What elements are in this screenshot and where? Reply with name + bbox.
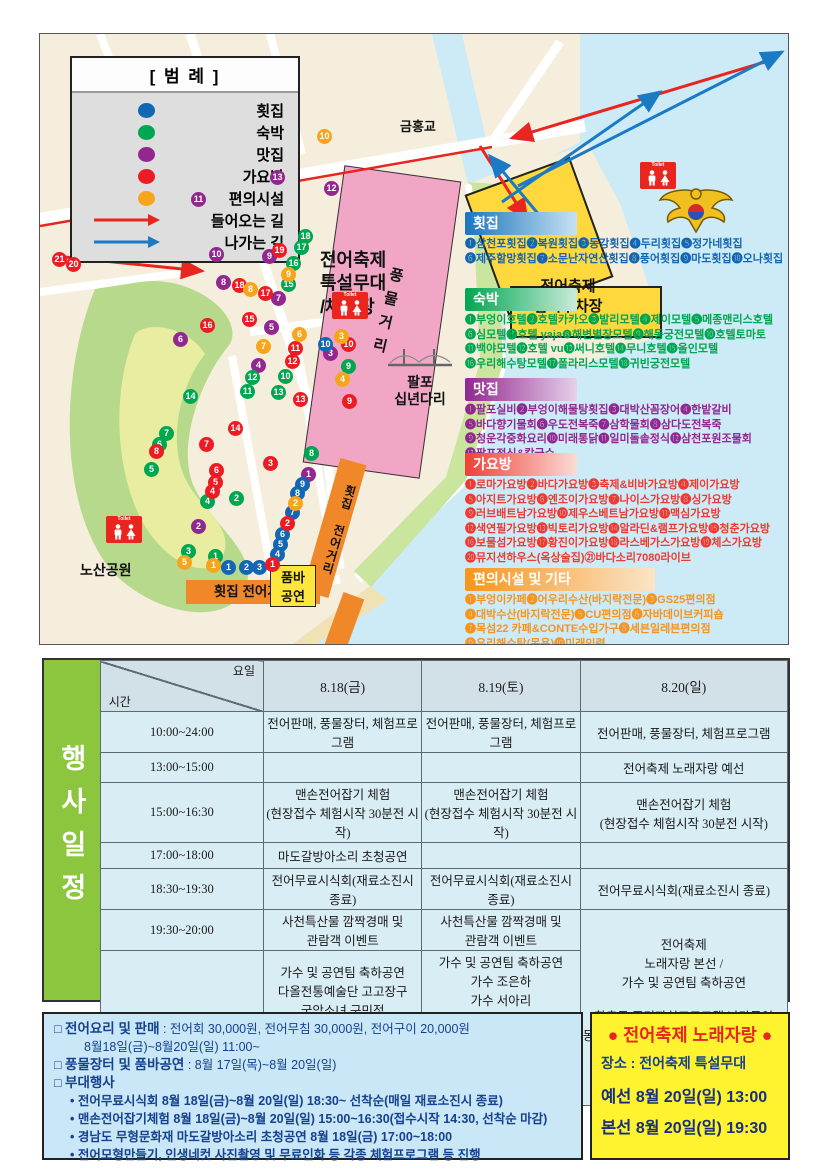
directory-item: ⓲귀빈궁전모텔 [619,358,691,370]
corner-day-label: 요일 [233,662,255,679]
schedule-cell: 전어판매, 풍물장터, 체험프로그램 [422,712,580,753]
directory-item: ⓬호텔 vu [516,343,563,355]
schedule-corner-cell: 요일 시간 [100,661,263,712]
schedule-cell: 전어무료시식회(재료소진시 종료) [264,869,422,910]
map-marker-o-8: 8 [243,282,258,297]
schedule-cell: 사천특산물 깜짝경매 및 관람객 이벤트 [422,910,580,951]
directory-item: ❷부엉이해물탕횟집 [516,404,608,416]
directory-item: ⓴뮤지션하우스(옥상술집) [465,552,585,564]
schedule-time: 18:30~19:30 [100,869,263,910]
directory-item: ❼삼학물회 [598,419,649,431]
round-text: 8월 20일(일) 13:00 [636,1089,767,1106]
contest-round-row: 예선 8월 20일(일) 13:00 [601,1083,779,1107]
schedule-sidebar-title: 행사일정 [52,744,91,916]
map-marker-r-14: 14 [228,421,243,436]
info-sub-bullet: • 경남도 무형문화재 마도갈방아소리 초청공연 8월 18일(금) 17:00… [54,1128,571,1146]
outgoing-arrow-mid [502,92,660,202]
directory-item: ❿호텔토마토 [704,329,766,341]
directory-item: ❿미래인력 [554,638,605,646]
incoming-arrow-icon [92,213,162,227]
map-marker-r-4: 4 [205,484,220,499]
directory-header: 숙박 [465,288,577,311]
directory-item: ⓳체스가요방 [700,537,762,549]
legend-label: 맛집 [155,144,284,165]
directory-item: ❽삼다도전복죽 [650,419,722,431]
toilet-icon: Toilet [332,292,368,319]
map-marker-p-12: 12 [324,181,339,196]
map-marker-r-2: 2 [280,516,295,531]
square-bullet: □ [54,1022,62,1036]
map-marker-r-13: 13 [293,392,308,407]
directory-item: ❶팔포실비 [465,404,516,416]
directory-header: 맛집 [465,378,577,401]
directory-item: ❶삼천포횟집 [465,238,527,250]
map-marker-p-10: 10 [209,247,224,262]
legend-dot-matjip [138,147,155,162]
directory-item: ❽세븐일레븐편의점 [619,623,711,635]
directory-item: ❹제이가요방 [678,479,740,491]
directory-item: ❽풍어횟집 [629,253,680,265]
info-row: □ 풍물장터 및 품바공연 : 8월 17일(목)~8월 20일(일) [54,1056,571,1074]
legend-dot-pyeonui [138,191,155,206]
schedule-cell: 전어판매, 풍물장터, 체험프로그램 [264,712,422,753]
schedule-cell: 전어판매, 풍물장터, 체험프로그램 [580,712,787,753]
directory-item: ❹한밭갈비 [680,404,731,416]
outgoing-arrow-icon [92,235,162,249]
map-marker-o-1: 1 [206,558,221,573]
info-label: 풍물장터 및 품바공연 [65,1057,184,1072]
directory-item: ❻엔조이가요방 [537,494,609,506]
directory-item: ⓮알라딘&램프가요방 [608,523,708,535]
map-marker-r-20: 20 [66,257,81,272]
info-row: □ 부대행사 [54,1074,571,1092]
directory-item: ❺CU편의점 [574,609,631,621]
directory-item: ⓯청춘가요방 [708,523,770,535]
festival-info-box: □ 전어요리 및 판매 : 전어회 30,000원, 전어무침 30,000원,… [42,1012,583,1160]
female-icon [660,170,670,186]
schedule-cell: 전어무료시식회(재료소진시 종료) [580,869,787,910]
directory-section-pyeonui: 편의시설 및 기타 ❶부엉이카페❷어우리수산(바지락전문)❸GS25편의점❹대박… [465,568,787,645]
legend-dot-sukbak [138,125,155,140]
directory-items: ❶삼천포횟집❷복원횟집❸동강횟집❹두리횟집❺정가네횟집❻제주할망횟집❼소문난자연… [465,237,787,266]
map-marker-o-3: 3 [334,329,349,344]
directory-item: ❼나이스가요방 [608,494,680,506]
map-marker-r-17: 17 [258,286,273,301]
directory-item: ⓬삼천포원조물회 [670,433,752,445]
map-marker-r-19: 19 [272,243,287,258]
singing-contest-box: ● 전어축제 노래자랑 ● 장소 : 전어축제 특설무대 예선 8월 20일(일… [590,1012,790,1160]
map-marker-r-1: 1 [265,557,280,572]
directory-item: ❼호텔 yaja [506,329,562,341]
map-marker-r-16: 16 [200,318,215,333]
schedule-cell: 마도갈방아소리 초청공연 [264,843,422,869]
directory-items: ❶부엉이호텔❷호텔카카오❸발리모텔❹제이모텔❺메종맨리스호텔❻심모텔❼호텔 ya… [465,313,787,371]
directory-item: ❽해변별장모텔 [562,329,633,341]
incoming-arrow-topright [512,59,775,138]
map-marker-g-17: 17 [294,240,309,255]
schedule-cell: 맨손전어잡기 체험 (현장접수 체험시작 30분전 시작) [264,783,422,843]
incoming-arrow-parking [480,146,527,220]
directory-item: ❻심모텔 [465,329,506,341]
round-label: 본선 [601,1119,631,1137]
directory-item: ❿제우스베트남가요방 [557,508,659,520]
directory-item: ❿미래통닭 [547,433,598,445]
directory-item: ⓫맥심가요방 [659,508,721,520]
legend-dot-gayobang [138,169,155,184]
directory-item: ⓮무니호텔 [615,343,666,355]
map-marker-o-10: 10 [317,129,332,144]
directory-item: ❺아지트가요방 [465,494,537,506]
legend-label: 가요방 [155,166,284,187]
schedule-day-header: 8.19(토) [422,661,580,712]
directory-item: ❶부엉이카페 [465,594,527,606]
directory-item: ❷바다가요방 [527,479,589,491]
map-marker-b-10: 10 [318,337,333,352]
map-marker-o-4: 4 [335,372,350,387]
map-marker-g-10: 10 [278,369,293,384]
bridge2-group: 팔포 십년다리 [370,329,470,426]
map-marker-p-7: 7 [271,291,286,306]
map-marker-p-5: 5 [264,320,279,335]
male-icon [113,524,123,540]
map-marker-r-8: 8 [149,444,164,459]
square-bullet: □ [54,1058,62,1072]
schedule-cell: 전어축제 노래자랑 예선 [580,753,787,783]
directory-item: ❾우리해수탕(목욕) [465,638,554,646]
schedule-cell: 전어무료시식회(재료소진시 종료) [422,869,580,910]
legend-title: [ 범 례 ] [72,58,298,93]
schedule-cell [422,753,580,783]
directory-item: ❸발리모텔 [588,314,639,326]
event-schedule: 행사일정 요일 시간 8.18(금) 8.19(토) 8.20(일) 10:00… [42,658,790,1002]
map-legend: [ 범 례 ] 횟집 숙박 맛집 가요방 편의시설 들어오는 길 나가는 길 [70,56,300,263]
directory-item: ⓬색연필가요방 [465,523,537,535]
directory-item: ❾해동궁전모텔 [633,329,705,341]
bridge-name-label: 금홍교 [400,116,436,135]
schedule-time: 19:30~20:00 [100,910,263,951]
directory-item: ⓫일미돌솥정식 [598,433,670,445]
round-text: 8월 20일(일) 19:30 [636,1120,767,1137]
map-marker-g-13: 13 [271,385,286,400]
info-label: 전어요리 및 판매 [65,1021,159,1036]
contest-round-row: 본선 8월 20일(일) 19:30 [601,1114,779,1138]
info-sub-bullet: • 전어무료시식회 8월 18일(금)~8월 20일(일) 18:30~ 선착순… [54,1092,571,1110]
male-icon [339,300,349,316]
directory-section-hoetjip: 횟집 ❶삼천포횟집❷복원횟집❸동강횟집❹두리횟집❺정가네횟집❻제주할망횟집❼소문… [465,212,787,266]
directory-item: ❹대박수산(바지락전문) [465,609,574,621]
directory-header: 편의시설 및 기타 [465,568,655,591]
directory-item: ❷복원횟집 [527,238,578,250]
map-marker-g-14: 14 [183,389,198,404]
schedule-time: 17:00~18:00 [100,843,263,869]
directory-item: ❸축제&비바가요방 [588,479,678,491]
info-sub-bullet: • 전어모형만들기, 인생네컷 사진촬영 및 무료인화 등 각종 체험프로그램 … [54,1146,571,1164]
map-marker-b-2: 2 [239,560,254,575]
schedule-cell: 사천특산물 깜짝경매 및 관람객 이벤트 [264,910,422,951]
legend-label: 편의시설 [155,188,284,209]
info-text: : 전어회 30,000원, 전어무침 30,000원, 전어구이 20,000… [160,1022,470,1036]
map-marker-r-21: 21 [52,252,67,267]
directory-item: ⓰우리해수탕모텔 [465,358,547,370]
bridge-icon [388,347,452,369]
schedule-cell: 맨손전어잡기 체험 (현장접수 체험시작 30분전 시작) [422,783,580,843]
schedule-time: 15:00~16:30 [100,783,263,843]
pumba-show-box: 품바 공연 [270,565,316,607]
directory-item: ❷호텔카카오 [527,314,589,326]
map-marker-g-5: 5 [144,462,159,477]
directory-item: ❷어우리수산(바지락전문) [527,594,647,606]
info-label: 부대행사 [65,1075,115,1090]
schedule-day-header: 8.18(금) [264,661,422,712]
directory-item: ❼목섬22 카페&CONTE수입가구 [465,623,619,635]
legend-dot-hoetjip [138,103,155,118]
contest-place: 장소 : 전어축제 특설무대 [601,1053,779,1073]
schedule-cell: 맨손전어잡기 체험 (현장접수 체험시작 30분전 시작) [580,783,787,843]
map-marker-b-1: 1 [221,560,236,575]
directory-item: ❺메종맨리스호텔 [691,314,773,326]
directory-item: ❿오나횟집 [732,253,783,265]
directory-item: ❽싱가요방 [680,494,731,506]
schedule-time: 10:00~24:00 [100,712,263,753]
info-sub-bullet: • 맨손전어잡기체험 8월 18일(금)~8월 20일(일) 15:00~16:… [54,1110,571,1128]
map-marker-o-2: 2 [288,496,303,511]
map-marker-g-12: 12 [245,370,260,385]
directory-header: 횟집 [465,212,577,235]
map-marker-r-11: 11 [288,341,303,356]
map-marker-r-12: 12 [285,354,300,369]
map-marker-p-13: 13 [270,170,285,185]
directory-item: ❻제주할망횟집 [465,253,537,265]
bridge2-name-label: 팔포 십년다리 [370,374,470,408]
directory-item: ⓱폴라리스모텔 [547,358,619,370]
female-icon [352,300,362,316]
directory-section-matjip: 맛집 ❶팔포실비❷부엉이해물탕횟집❸대박산꼼장어❹한밭갈비❺바다향기물회❻우도전… [465,378,787,461]
directory-item: ❼소문난자연산횟집 [537,253,629,265]
legend-label: 숙박 [155,122,284,143]
legend-label: 횟집 [155,100,284,121]
directory-section-gayobang: 가요방 ❶로마가요방❷바다가요방❸축제&비바가요방❹제이가요방❺아지트가요방❻엔… [465,453,787,565]
directory-item: ⓫백야모텔 [465,343,516,355]
directory-item: ⓲라스베가스가요방 [608,537,700,549]
directory-item: ❺정가네횟집 [681,238,743,250]
map-marker-o-5: 5 [177,555,192,570]
directory-items: ❶부엉이카페❷어우리수산(바지락전문)❸GS25편의점❹대박수산(바지락전문)❺… [465,593,787,645]
directory-item: ❺바다향기물회 [465,419,537,431]
map-marker-r-9: 9 [342,394,357,409]
directory-items: ❶로마가요방❷바다가요방❸축제&비바가요방❹제이가요방❺아지트가요방❻엔조이가요… [465,478,787,565]
directory-item: ❹제이모텔 [640,314,691,326]
map-marker-r-3: 3 [263,456,278,471]
festival-map: 전어축제 특설무대 /체험장 전어축제 임시주차장 [ 범 례 ] 횟집 숙박 … [39,33,789,645]
map-marker-g-11: 11 [240,384,255,399]
map-marker-o-9: 9 [281,267,296,282]
map-marker-p-2: 2 [191,519,206,534]
directory-item: ⓯올인모텔 [667,343,718,355]
map-marker-p-8: 8 [216,275,231,290]
round-label: 예선 [601,1088,631,1106]
directory-section-sukbak: 숙박 ❶부엉이호텔❷호텔카카오❸발리모텔❹제이모텔❺메종맨리스호텔❻심모텔❼호텔… [465,288,787,371]
map-marker-o-6: 6 [292,327,307,342]
toilet-icon: Toilet [106,516,142,543]
directory-item: ❸동강횟집 [578,238,629,250]
directory-item: ❸GS25편의점 [646,594,716,606]
directory-item: ❾러브배트남가요방 [465,508,557,520]
map-marker-g-2: 2 [229,491,244,506]
schedule-cell [422,843,580,869]
directory-item: ㉑바다소리7080라이브 [585,552,691,564]
map-marker-o-7: 7 [256,339,271,354]
directory-item: ❻자바데이브커피숍 [632,609,724,621]
directory-header: 가요방 [465,453,577,476]
directory-item: ❶부엉이호텔 [465,314,527,326]
map-marker-p-11: 11 [191,192,206,207]
directory-item: ❻우도전복죽 [537,419,599,431]
info-continuation: 8월18일(금)~8월20일(일) 11:00~ [54,1038,571,1056]
schedule-cell [264,753,422,783]
directory-item: ❾청운각중화요리 [465,433,547,445]
schedule-day-header: 8.20(일) [580,661,787,712]
directory-item: ⓱황진이가요방 [537,537,609,549]
directory-item: ❶로마가요방 [465,479,527,491]
map-marker-g-8: 8 [304,446,319,461]
square-bullet: □ [54,1076,62,1090]
directory-item: ⓭써니호텔 [564,343,615,355]
park-name-label: 노산공원 [80,560,132,580]
male-icon [647,170,657,186]
directory-item: ❾마도횟집 [680,253,731,265]
map-marker-r-15: 15 [242,312,257,327]
map-marker-r-7: 7 [199,437,214,452]
directory-item: ❹두리횟집 [630,238,681,250]
directory-item: ⓭빅토리가요방 [537,523,609,535]
map-marker-p-6: 6 [173,332,188,347]
directory-item: ❸대박산꼼장어 [608,404,680,416]
toilet-icon: Toilet [640,162,676,189]
info-text: : 8월 17일(목)~8월 20일(일) [184,1058,336,1072]
female-icon [126,524,136,540]
legend-label: 들어오는 길 [162,210,284,231]
schedule-cell [580,843,787,869]
schedule-sidebar: 행사일정 [44,660,100,1000]
schedule-time: 13:00~15:00 [100,753,263,783]
contest-title: ● 전어축제 노래자랑 ● [601,1022,779,1047]
directory-item: ⓰보물섬가요방 [465,537,537,549]
info-row: □ 전어요리 및 판매 : 전어회 30,000원, 전어무침 30,000원,… [54,1020,571,1038]
corner-time-label: 시간 [109,693,131,710]
